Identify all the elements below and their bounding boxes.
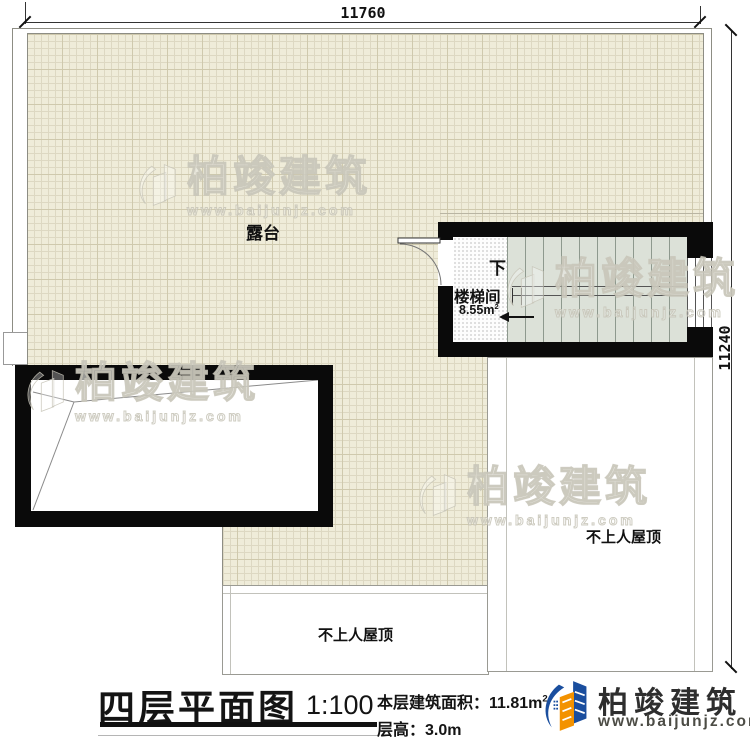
floor-plan-canvas: 11760 11240 露台 不上人屋顶 不上人屋顶 — [0, 0, 750, 743]
floor-area-label: 本层建筑面积： — [377, 695, 489, 712]
floor-height-row: 层高：3.0m — [377, 716, 461, 740]
roof-void-interior — [31, 380, 318, 511]
terrace-edge-top — [27, 33, 704, 34]
stair-down-label: 下 — [489, 254, 506, 279]
roof-right-label: 不上人屋顶 — [586, 526, 661, 547]
title-underline-thin — [98, 735, 377, 736]
floor-area-row: 本层建筑面积：11.81m2 — [377, 689, 548, 713]
terrace-edge-lower-left — [222, 527, 223, 586]
roof-edge-stub — [3, 332, 28, 365]
terrace-edge-left — [27, 33, 28, 366]
roof-bottom-label: 不上人屋顶 — [223, 624, 488, 645]
terrace-edge-right — [703, 33, 704, 223]
roof-void-room — [15, 365, 333, 527]
stair-direction-arrow — [508, 316, 534, 318]
roof-inner-line — [694, 358, 695, 671]
stair-direction-arrowhead — [499, 312, 509, 322]
floor-area-value: 11.81m — [489, 695, 542, 712]
floor-height-value: 3.0m — [425, 722, 461, 739]
dimension-right-value: 11240 — [716, 320, 734, 376]
roof-inner-line — [223, 593, 488, 594]
stair-rail-post — [512, 288, 522, 305]
roof-area-bottom: 不上人屋顶 — [222, 585, 489, 675]
stair-area-label: 8.55m2 — [459, 302, 499, 317]
roof-slab-edge — [440, 213, 703, 214]
roof-area-right: 不上人屋顶 — [487, 357, 713, 672]
drawing-scale: 1:100 — [306, 690, 374, 721]
door-swing-icon — [392, 230, 458, 292]
roof-outline-top — [12, 28, 712, 29]
stair-window — [687, 258, 713, 327]
dimension-line-top — [25, 22, 701, 23]
stair-area-sup: 2 — [494, 302, 498, 311]
title-underline — [100, 722, 377, 727]
brand-logo-icon — [538, 674, 594, 738]
slope-lines — [31, 380, 318, 511]
stair-rail — [512, 286, 684, 296]
stair-area-value: 8.55m — [459, 303, 494, 317]
floor-height-label: 层高： — [377, 722, 425, 739]
roof-outline-left — [12, 28, 13, 366]
dimension-top-value: 11760 — [328, 4, 398, 22]
terrace-label: 露台 — [246, 219, 280, 244]
roof-inner-line — [506, 358, 507, 671]
brand-url: www.baijunjz.com — [598, 713, 750, 731]
